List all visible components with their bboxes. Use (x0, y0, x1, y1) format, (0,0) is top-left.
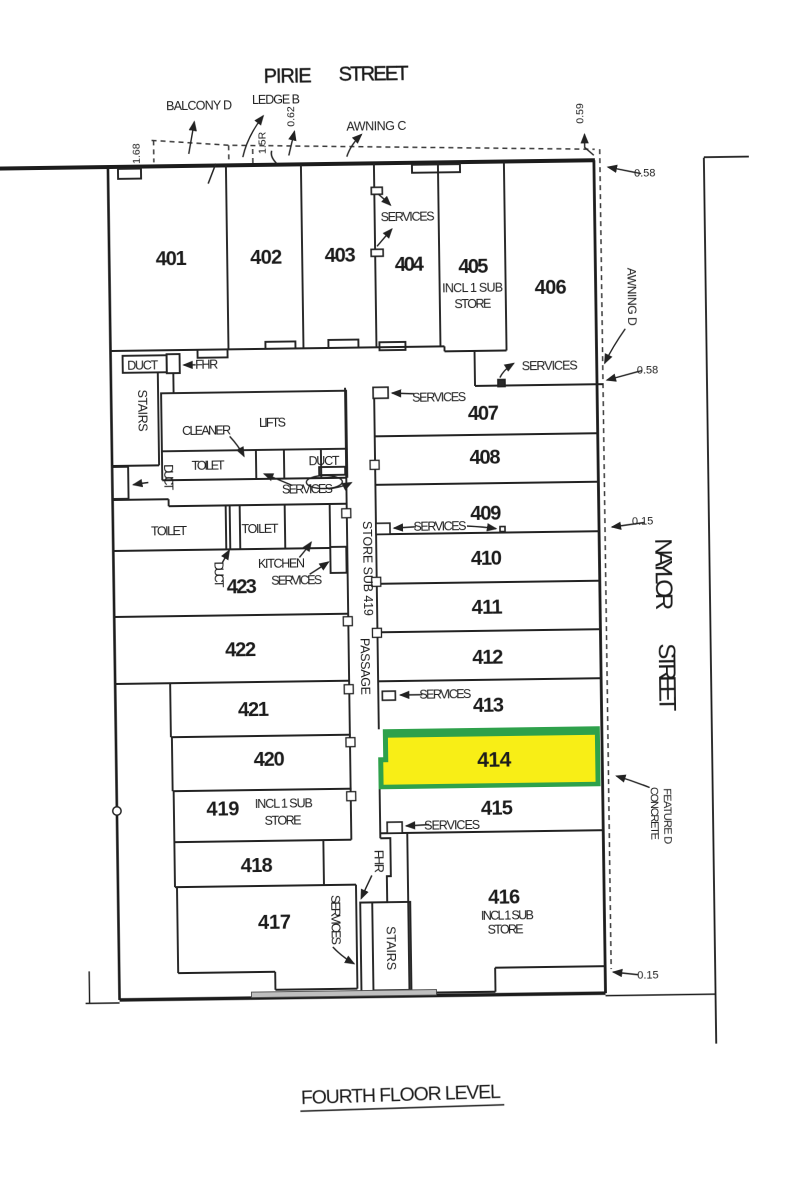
svg-text:FOURTH FLOOR LEVEL: FOURTH FLOOR LEVEL (301, 1081, 502, 1109)
svg-text:BALCONY D: BALCONY D (166, 98, 232, 113)
svg-text:0.15: 0.15 (637, 969, 659, 981)
svg-text:0.59: 0.59 (574, 103, 586, 124)
svg-text:NAYLOR: NAYLOR (649, 538, 677, 610)
svg-text:TOILET: TOILET (151, 524, 188, 539)
svg-text:KITCHEN: KITCHEN (258, 556, 305, 571)
svg-text:DUCT: DUCT (161, 464, 175, 491)
svg-text:416: 416 (488, 886, 520, 908)
svg-text:SERVICES: SERVICES (271, 573, 322, 588)
svg-text:408: 408 (469, 447, 500, 469)
svg-text:401: 401 (156, 248, 187, 270)
svg-text:STORE: STORE (454, 297, 491, 312)
svg-text:403: 403 (325, 245, 356, 267)
svg-text:LIFTS: LIFTS (259, 416, 286, 430)
svg-text:404: 404 (395, 254, 425, 276)
svg-text:PIRIE: PIRIE (264, 65, 312, 88)
svg-text:415: 415 (481, 797, 513, 819)
svg-text:SERVICES: SERVICES (412, 390, 466, 405)
svg-text:420: 420 (254, 749, 285, 771)
svg-text:PASSAGE: PASSAGE (358, 638, 373, 695)
svg-text:417: 417 (258, 912, 291, 934)
svg-text:CONCRETE: CONCRETE (648, 787, 661, 840)
svg-text:410: 410 (471, 548, 502, 570)
svg-text:STAIRS: STAIRS (384, 926, 399, 970)
svg-text:412: 412 (472, 647, 503, 669)
svg-text:AWNING D: AWNING D (624, 268, 639, 327)
svg-text:421: 421 (238, 699, 269, 721)
svg-text:DUCT: DUCT (308, 454, 340, 468)
svg-text:STREET: STREET (339, 63, 409, 86)
svg-text:STORE: STORE (264, 813, 301, 828)
svg-text:LEDGE B: LEDGE B (252, 92, 300, 107)
svg-text:SERVICES: SERVICES (424, 818, 480, 833)
svg-text:418: 418 (241, 855, 273, 877)
svg-text:TOILET: TOILET (192, 458, 226, 472)
svg-text:DUCT: DUCT (211, 561, 225, 588)
svg-text:1.68: 1.68 (131, 143, 143, 164)
svg-text:DUCT: DUCT (127, 358, 159, 372)
svg-text:SERVICES: SERVICES (328, 895, 343, 945)
svg-text:INCL 1 SUB: INCL 1 SUB (481, 908, 534, 923)
svg-text:414: 414 (477, 748, 512, 771)
svg-text:409: 409 (470, 503, 501, 525)
svg-text:SERVICES: SERVICES (419, 687, 471, 702)
svg-text:SERVICES: SERVICES (381, 209, 435, 224)
svg-text:STORE: STORE (488, 922, 524, 937)
svg-text:TOILET: TOILET (241, 522, 279, 537)
svg-text:AWNING C: AWNING C (346, 119, 406, 134)
svg-text:0.62: 0.62 (285, 106, 297, 127)
svg-text:423: 423 (227, 576, 257, 598)
svg-text:STREET: STREET (653, 643, 681, 712)
svg-text:407: 407 (468, 403, 499, 425)
svg-text:422: 422 (225, 639, 256, 661)
svg-text:FHR: FHR (371, 850, 385, 873)
svg-text:411: 411 (471, 597, 502, 619)
svg-text:0.15: 0.15 (632, 515, 654, 527)
svg-text:SERVICES: SERVICES (522, 358, 578, 373)
svg-text:413: 413 (473, 695, 504, 717)
svg-text:STAIRS: STAIRS (135, 389, 150, 431)
svg-text:1.5R: 1.5R (256, 131, 268, 154)
svg-text:INCL 1 SUB: INCL 1 SUB (255, 796, 313, 811)
svg-text:CLEANER: CLEANER (182, 423, 231, 438)
svg-text:FHR: FHR (195, 358, 218, 372)
svg-text:STORE SUB 419: STORE SUB 419 (360, 521, 375, 616)
svg-text:406: 406 (535, 277, 567, 299)
svg-text:405: 405 (458, 256, 488, 278)
svg-text:402: 402 (250, 247, 282, 269)
svg-text:INCL 1 SUB: INCL 1 SUB (442, 281, 503, 296)
svg-text:FEATURE D: FEATURE D (661, 788, 674, 844)
svg-text:SERVICES: SERVICES (413, 519, 466, 534)
svg-text:419: 419 (206, 798, 239, 820)
